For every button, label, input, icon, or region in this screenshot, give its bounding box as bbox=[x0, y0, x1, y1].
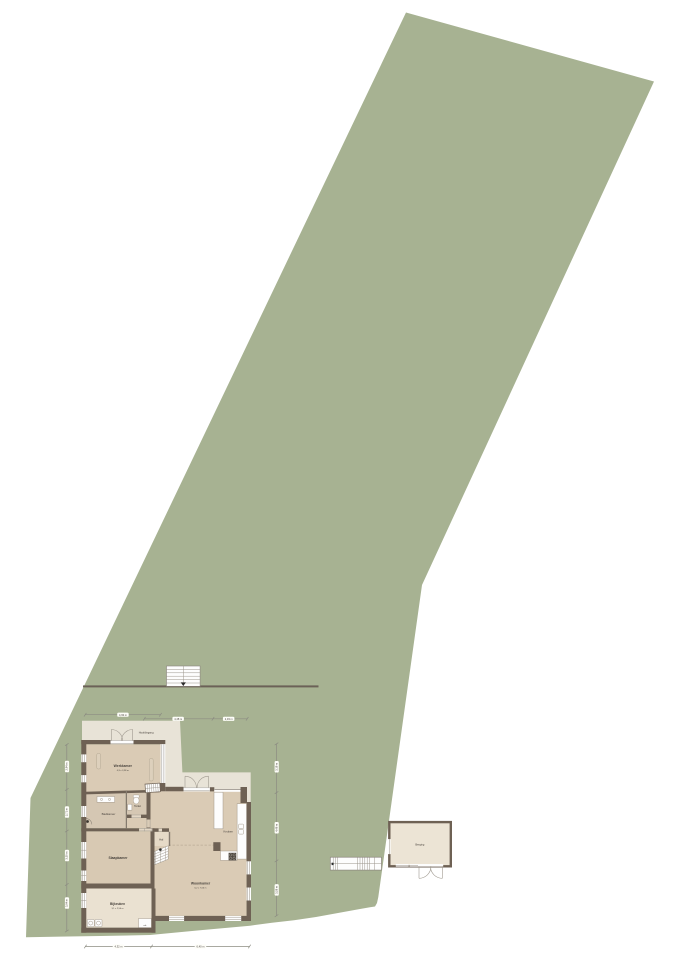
svg-text:3,18 m: 3,18 m bbox=[274, 763, 278, 771]
svg-text:Woonkamer: Woonkamer bbox=[191, 882, 211, 886]
svg-text:4,9 x 3,98 m: 4,9 x 3,98 m bbox=[117, 770, 129, 772]
svg-text:2,71 m: 2,71 m bbox=[65, 808, 69, 816]
svg-text:Keuken: Keuken bbox=[224, 830, 234, 834]
svg-text:Berging: Berging bbox=[415, 843, 424, 847]
svg-text:4,93 m: 4,93 m bbox=[119, 713, 127, 717]
svg-text:4,46 m: 4,46 m bbox=[274, 824, 278, 832]
svg-text:4,32 m: 4,32 m bbox=[115, 945, 123, 949]
svg-text:3,1 x 2,56 m: 3,1 x 2,56 m bbox=[111, 908, 123, 910]
svg-text:Badkamer: Badkamer bbox=[102, 812, 116, 816]
svg-text:2,94 m: 2,94 m bbox=[65, 763, 69, 771]
svg-text:Werkkamer: Werkkamer bbox=[114, 764, 133, 768]
svg-text:6,2 x 7,66 m: 6,2 x 7,66 m bbox=[194, 888, 206, 890]
svg-text:3,58 m: 3,58 m bbox=[274, 886, 278, 894]
svg-text:4,48 m: 4,48 m bbox=[174, 717, 182, 721]
svg-text:3,04 m: 3,04 m bbox=[65, 899, 69, 907]
svg-text:Toilet: Toilet bbox=[134, 804, 141, 808]
svg-text:3,50 m: 3,50 m bbox=[65, 852, 69, 860]
svg-text:6,40 m: 6,40 m bbox=[197, 945, 205, 949]
svg-text:Slaapkamer: Slaapkamer bbox=[108, 856, 128, 860]
svg-text:Bijkeuken: Bijkeuken bbox=[110, 902, 125, 906]
svg-text:Hal: Hal bbox=[159, 837, 164, 841]
svg-text:Hoofdingang: Hoofdingang bbox=[139, 731, 154, 735]
svg-text:2,03 m: 2,03 m bbox=[225, 717, 233, 721]
